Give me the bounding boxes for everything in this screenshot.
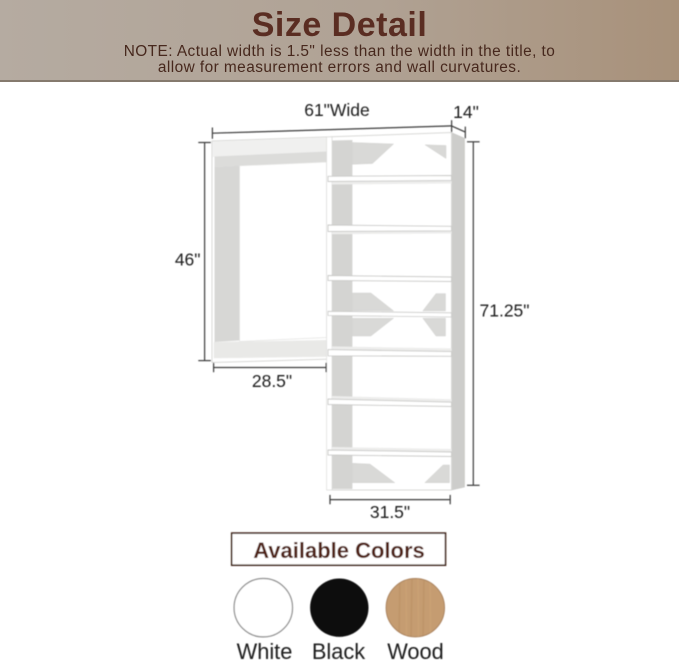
svg-text:71.25": 71.25" [480, 300, 530, 320]
svg-text:Available Colors: Available Colors [253, 538, 425, 563]
svg-text:Wood: Wood [387, 639, 444, 661]
svg-text:14": 14" [453, 102, 479, 122]
svg-text:46": 46" [175, 249, 201, 269]
svg-text:61"Wide: 61"Wide [304, 100, 370, 120]
svg-text:28.5": 28.5" [252, 371, 292, 391]
svg-text:31.5": 31.5" [370, 502, 410, 522]
svg-text:Black: Black [312, 639, 365, 661]
svg-text:White: White [237, 639, 293, 661]
